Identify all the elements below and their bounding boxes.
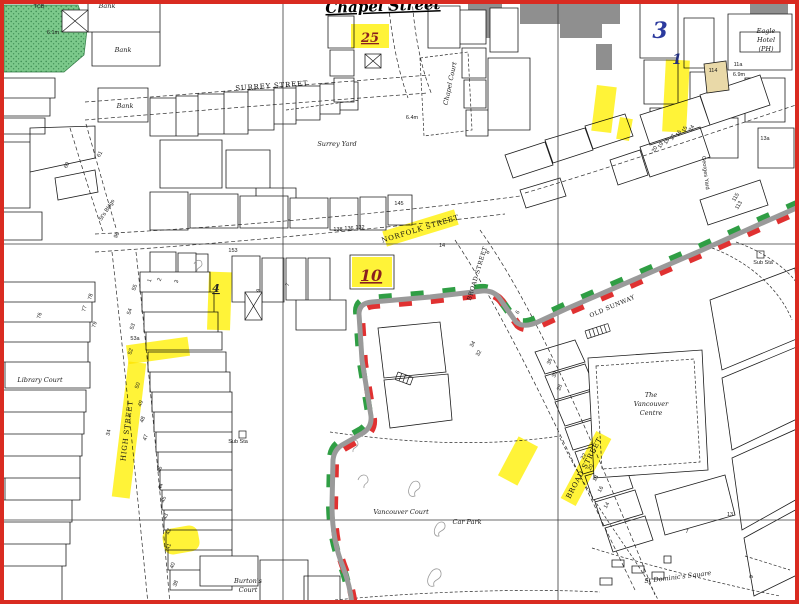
map-label: 138 [333, 227, 342, 233]
map-label: 13a [760, 136, 770, 142]
map-label: Eagle [756, 27, 776, 35]
map-label: Vancouver Court [373, 508, 429, 516]
map-label: 4 [212, 282, 220, 295]
map-label: 136 [344, 226, 353, 232]
map-label: Vancouver [634, 400, 669, 408]
map-label: Car Park [452, 518, 481, 526]
map-label: Sub Sta [228, 439, 249, 445]
map-label: TCB [34, 4, 45, 10]
map-label: Burton's [233, 577, 263, 585]
map-label: Surrey Yard [317, 140, 356, 148]
map-label: Bank [116, 102, 134, 110]
map-label: 25 [360, 31, 379, 46]
highlight-mark [662, 59, 690, 132]
map-extract-frame: Chapel Street2510314SURREY STREETNORFOLK… [0, 0, 799, 604]
map-label: Court [239, 586, 258, 594]
map-label: 14 [439, 243, 445, 249]
map-label: 132 [355, 225, 364, 231]
map-label: Bank [114, 46, 132, 54]
map-label: 6.1m [47, 30, 60, 36]
map-label: The [645, 391, 658, 399]
map-label: 6.4m [406, 115, 419, 121]
map-label: 53a [130, 336, 140, 342]
map-label: Centre [640, 409, 663, 417]
tan-building [704, 61, 729, 93]
map-label: (PH) [758, 45, 774, 53]
map-label: Hotel [756, 36, 775, 44]
map-label: 10 [360, 266, 382, 285]
map-label: 145 [394, 201, 403, 207]
street-map-canvas: Chapel Street2510314SURREY STREETNORFOLK… [0, 0, 799, 604]
map-label: Library Court [16, 376, 63, 384]
map-label: 1 [672, 52, 682, 68]
map-label: 3 [652, 18, 667, 44]
map-label: 11a [734, 62, 744, 68]
map-label: 13 [727, 512, 733, 518]
map-label: 114 [709, 68, 718, 74]
map-label: 7 [685, 529, 688, 535]
map-label: Sub Sta [753, 260, 774, 266]
highlight-mark [207, 272, 232, 331]
map-label: 6.9m [733, 72, 746, 78]
map-label: 153 [228, 248, 237, 254]
